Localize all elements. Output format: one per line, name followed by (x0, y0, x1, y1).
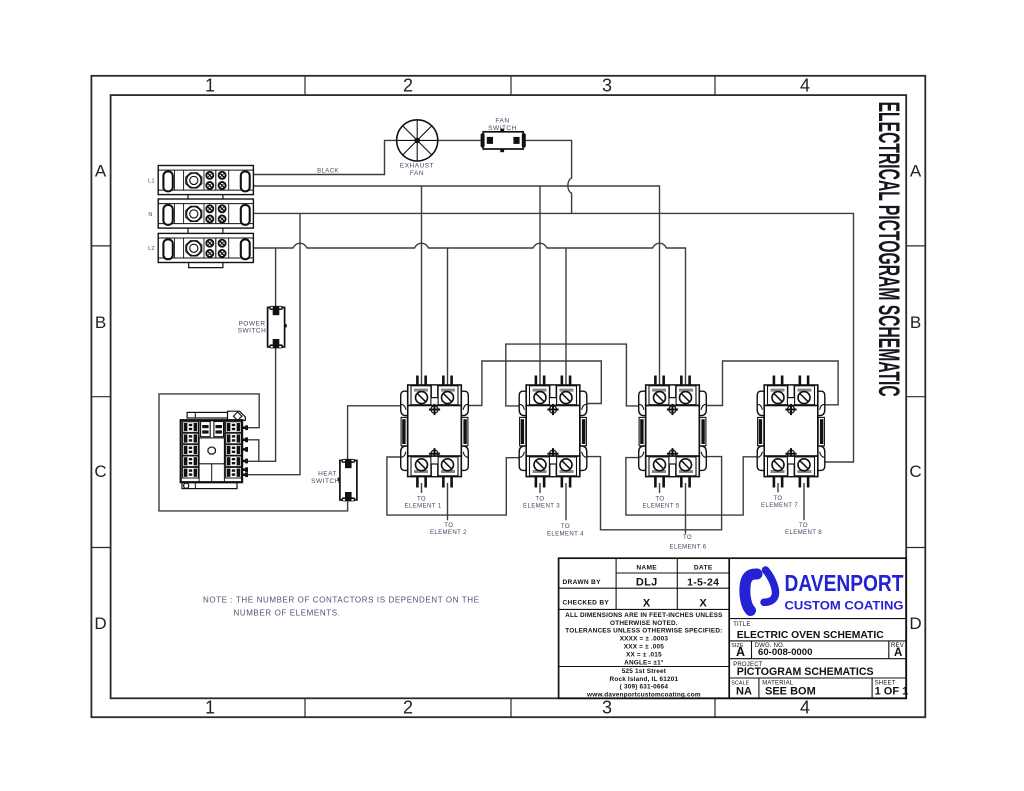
svg-text:EXHAUST: EXHAUST (400, 163, 434, 170)
svg-text:ELEMENT 6: ELEMENT 6 (670, 544, 707, 551)
svg-text:ELECTRICAL PICTOGRAM SCHEMATIC: ELECTRICAL PICTOGRAM SCHEMATIC (871, 102, 904, 397)
svg-text:B: B (910, 313, 921, 332)
svg-text:NOTE : THE NUMBER OF CONTACTOR: NOTE : THE NUMBER OF CONTACTORS IS DEPEN… (203, 595, 480, 604)
svg-text:ELECTRIC OVEN SCHEMATIC: ELECTRIC OVEN SCHEMATIC (737, 630, 884, 641)
svg-text:1: 1 (205, 76, 215, 96)
svg-text:TO: TO (799, 522, 808, 529)
svg-text:C: C (909, 462, 921, 481)
svg-text:ANGLE= ±1°: ANGLE= ±1° (624, 658, 664, 666)
svg-text:2: 2 (403, 76, 413, 96)
svg-text:CHECKED BY: CHECKED BY (563, 600, 610, 607)
svg-text:NA: NA (736, 685, 752, 697)
svg-text:ELEMENT 7: ELEMENT 7 (761, 502, 798, 509)
svg-text:TO: TO (561, 523, 570, 530)
svg-text:2: 2 (403, 698, 413, 718)
svg-text:BLACK: BLACK (317, 169, 339, 175)
svg-text:N: N (148, 212, 152, 218)
svg-text:PICTOGRAM SCHEMATICS: PICTOGRAM SCHEMATICS (737, 666, 874, 678)
svg-text:( 309) 631-0664: ( 309) 631-0664 (620, 684, 669, 691)
svg-text:NAME: NAME (636, 564, 657, 571)
svg-text:L2: L2 (148, 246, 155, 252)
svg-text:XX = ± .015: XX = ± .015 (626, 652, 662, 659)
svg-text:SWITCH: SWITCH (311, 478, 340, 485)
svg-text:TITLE: TITLE (733, 622, 750, 628)
svg-text:CUSTOM COATING: CUSTOM COATING (785, 599, 904, 613)
svg-text:ELEMENT 8: ELEMENT 8 (785, 529, 822, 536)
svg-text:A: A (910, 162, 922, 181)
svg-text:POWER: POWER (238, 320, 265, 327)
svg-text:SWITCH: SWITCH (488, 125, 517, 132)
svg-text:Rock Island, IL 61201: Rock Island, IL 61201 (610, 676, 679, 683)
svg-text:1-5-24: 1-5-24 (687, 576, 719, 588)
svg-text:DLJ: DLJ (636, 576, 658, 588)
svg-text:D: D (909, 614, 921, 633)
svg-text:4: 4 (800, 76, 810, 96)
svg-text:4: 4 (800, 698, 810, 718)
svg-text:B: B (95, 313, 106, 332)
svg-text:C: C (94, 462, 106, 481)
svg-text:60-008-0000: 60-008-0000 (758, 647, 812, 658)
svg-text:X: X (699, 597, 707, 609)
svg-text:FAN: FAN (410, 170, 424, 177)
svg-text:ELEMENT 2: ELEMENT 2 (430, 529, 467, 536)
svg-text:XXX = ± .005: XXX = ± .005 (624, 644, 664, 651)
svg-text:525 1st Street: 525 1st Street (622, 668, 667, 675)
svg-text:SEE BOM: SEE BOM (765, 685, 816, 697)
svg-text:ELEMENT 3: ELEMENT 3 (523, 502, 560, 509)
svg-text:SWITCH: SWITCH (238, 327, 267, 334)
svg-text:3: 3 (602, 698, 612, 718)
svg-text:TOLERANCES UNLESS OTHERWISE SP: TOLERANCES UNLESS OTHERWISE SPECIFIED: (565, 628, 722, 635)
svg-text:ELEMENT 5: ELEMENT 5 (643, 503, 680, 510)
svg-text:NUMBER OF ELEMENTS.: NUMBER OF ELEMENTS. (234, 609, 341, 618)
svg-text:D: D (94, 614, 106, 633)
svg-text:ALL DIMENSIONS ARE IN FEET-INC: ALL DIMENSIONS ARE IN FEET-INCHES UNLESS (565, 612, 723, 619)
svg-text:www.davenportcustomcoating.com: www.davenportcustomcoating.com (586, 692, 701, 699)
svg-text:L1: L1 (148, 179, 155, 185)
svg-text:X: X (643, 597, 651, 609)
svg-text:HEAT: HEAT (318, 471, 337, 478)
svg-text:DRAWN BY: DRAWN BY (563, 579, 602, 586)
svg-text:A: A (894, 647, 902, 659)
svg-text:DAVENPORT: DAVENPORT (785, 570, 904, 596)
svg-text:3: 3 (602, 76, 612, 96)
svg-text:1 OF 1: 1 OF 1 (875, 685, 909, 697)
svg-text:TO: TO (683, 534, 692, 541)
svg-text:A: A (736, 645, 745, 659)
svg-text:A: A (95, 162, 107, 181)
svg-text:ELEMENT 4: ELEMENT 4 (547, 531, 584, 538)
svg-text:1: 1 (205, 698, 215, 718)
svg-text:OTHERWISE NOTED.: OTHERWISE NOTED. (610, 620, 678, 627)
svg-text:TO: TO (444, 522, 453, 529)
svg-text:ELEMENT 1: ELEMENT 1 (405, 502, 442, 509)
svg-text:XXXX = ± .0003: XXXX = ± .0003 (620, 636, 669, 643)
svg-text:FAN: FAN (495, 118, 509, 125)
svg-text:DATE: DATE (694, 564, 713, 571)
